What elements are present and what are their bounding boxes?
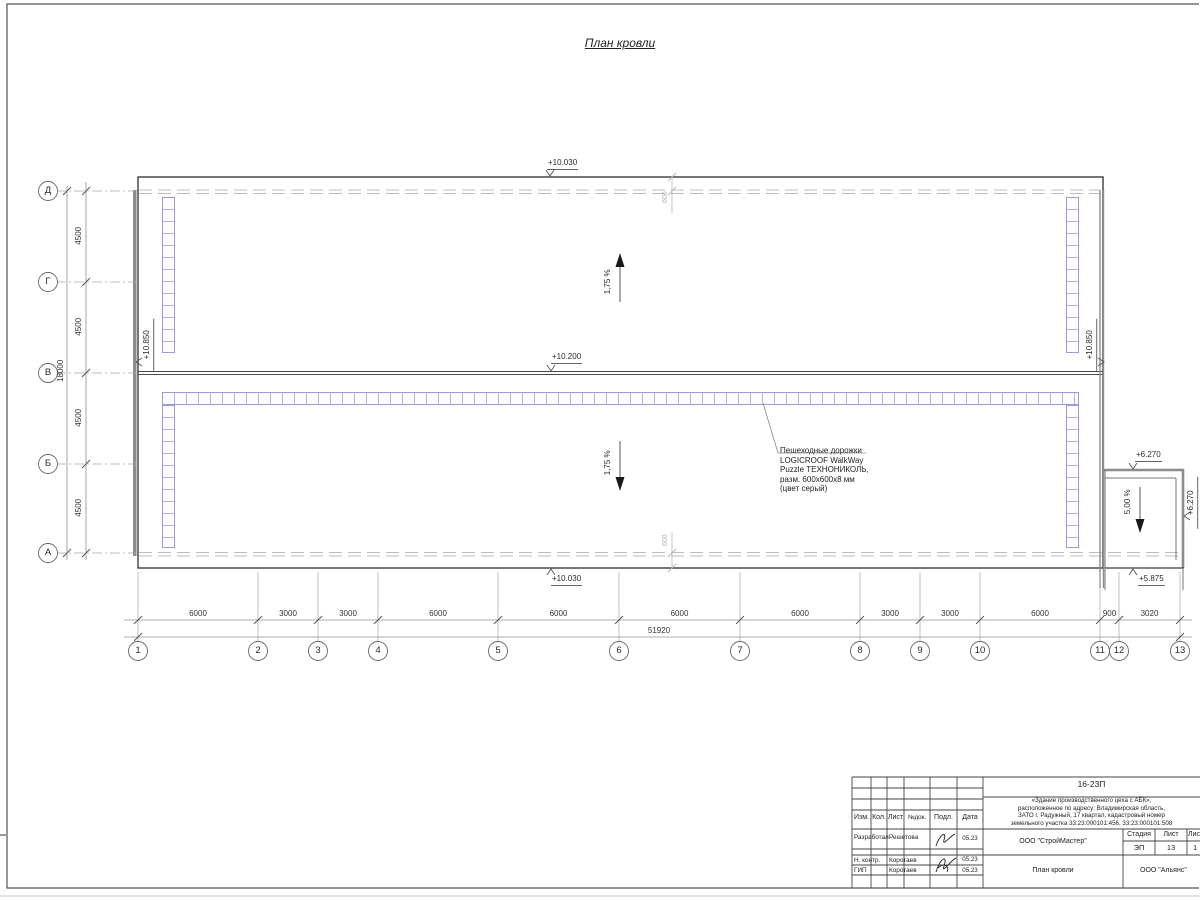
wall-right [1100, 190, 1104, 588]
walkway-strip-upper-left [162, 197, 175, 353]
dim-row-total: 18000 [56, 346, 66, 396]
elevation-ridge: +10.200 [551, 352, 582, 364]
axis-col-label: 8 [851, 645, 869, 656]
axis-col-label: 11 [1091, 645, 1109, 656]
titleblock-header-date: Дата [957, 814, 983, 822]
titleblock-role: ГИП [854, 867, 867, 874]
titleblock-sheet-label: Лист [1155, 831, 1187, 839]
slope-label-upper: 1,75 % [603, 257, 613, 307]
drawing-sheet: План кровли +10.030 +10.200 +10.030 +5.8… [0, 0, 1200, 900]
titleblock-date: 05.23 [957, 868, 983, 875]
elevation-right-wall: +10.850 [1085, 319, 1097, 371]
axis-row-label: А [39, 547, 57, 558]
axis-col-label: 9 [911, 645, 929, 656]
axis-row-label: Б [39, 458, 57, 469]
axis-col-label: 3 [309, 645, 327, 656]
axis-col-label: 7 [731, 645, 749, 656]
axis-col-label: 4 [369, 645, 387, 656]
drawing-linework [0, 0, 1200, 900]
elevation-annex-top: +6.270 [1135, 450, 1162, 462]
dim-col-segment: 6000 [775, 609, 825, 619]
titleblock-name: Решетова [889, 834, 918, 841]
wall-left [133, 190, 137, 556]
elevation-top-main: +10.030 [547, 158, 578, 170]
walkway-note: Пешеходные дорожки LOGICROOF WalkWay Puz… [780, 446, 869, 494]
dim-col-segment: 3000 [323, 609, 373, 619]
dim-col-segment: 6000 [655, 609, 705, 619]
titleblock-header-izm: Изм. [852, 814, 871, 822]
signature [936, 834, 956, 872]
dim-col-segment: 3000 [925, 609, 975, 619]
titleblock-project-line: ЗАТО г. Радужный, 17 квартал, кадастровы… [983, 813, 1200, 820]
titleblock-sheet-value: 13 [1155, 844, 1187, 852]
axis-col-label: 1 [129, 645, 147, 656]
dimension-lines [67, 177, 1192, 637]
walkway-note-line: разм. 600х600х8 мм [780, 475, 869, 485]
elevation-bottom-main: +10.030 [551, 574, 582, 586]
titleblock-name: Коротаев [889, 867, 917, 874]
titleblock-name: Коротаев [889, 857, 917, 864]
elevation-annex-right: +6.270 [1186, 477, 1198, 529]
axis-row-label: Д [39, 185, 57, 196]
titleblock-sheets-value: 1 [1193, 844, 1197, 852]
dim-row-segment: 4500 [74, 210, 84, 260]
slope-label-lower: 1,75 % [603, 438, 613, 488]
walkway-note-line: LOGICROOF WalkWay [780, 456, 869, 466]
ridge-line [138, 372, 1103, 375]
axis-row-label: В [39, 367, 57, 378]
generated-linework [39, 173, 1190, 661]
page-frame [0, 4, 1200, 896]
dim-col-segment: 6000 [173, 609, 223, 619]
titleblock-date: 05.23 [957, 857, 983, 864]
dim-parapet-top: 600 [662, 172, 670, 222]
elevation-annex-bottom: +5.875 [1138, 574, 1165, 586]
walkway-strip-lower-left [162, 405, 175, 548]
titleblock-sheets-label: Лис [1188, 831, 1200, 839]
page-title: План кровли [520, 36, 720, 50]
titleblock-doc-number: 16-23П [983, 780, 1200, 789]
titleblock-project-line: «Здание производственного цеха с АБК», [983, 798, 1200, 805]
walkway-note-line: (цвет серый) [780, 484, 869, 494]
roof-edge-dashed [139, 190, 1183, 556]
axis-col-label: 2 [249, 645, 267, 656]
walkway-note-line: Пешеходные дорожки [780, 446, 869, 456]
axis-col-label: 10 [971, 645, 989, 656]
axis-row-label: Г [39, 276, 57, 287]
walkway-strip-lower-right [1066, 405, 1079, 548]
dim-col-segment: 3000 [865, 609, 915, 619]
annex-outline [1104, 469, 1184, 590]
dim-row-segment: 4500 [74, 482, 84, 532]
building-outline [138, 177, 1103, 568]
titleblock-header-ndok: №док. [904, 815, 930, 822]
dim-col-segment: 3020 [1125, 609, 1175, 619]
titleblock-header-kol: Кол. [871, 814, 887, 822]
axis-col-label: 5 [489, 645, 507, 656]
titleblock-header-list: Лист [887, 814, 904, 822]
dim-parapet-bottom: 600 [662, 515, 670, 565]
titleblock-stage-label: Стадия [1123, 831, 1155, 839]
titleblock-date: 05.23 [957, 836, 983, 843]
titleblock-role: Н. контр. [854, 857, 880, 864]
slope-label-annex: 5,00 % [1123, 477, 1133, 527]
titleblock-header-podp: Подл. [930, 814, 957, 822]
titleblock-stage-value: ЭП [1123, 844, 1155, 852]
titleblock-drawing-name: План кровли [983, 867, 1123, 875]
dim-col-segment: 6000 [534, 609, 584, 619]
dim-row-segment: 4500 [74, 301, 84, 351]
dim-col-segment: 6000 [1015, 609, 1065, 619]
titleblock-org: ООО "СтройМастер" [983, 838, 1123, 846]
walkway-note-line: Puzzle ТЕХНОНИКОЛЬ, [780, 465, 869, 475]
titleblock-project-line: земельного участка 33:23:000101:456, 33:… [983, 821, 1200, 828]
walkway-strip-middle [162, 392, 1079, 405]
dim-col-total: 51920 [629, 626, 689, 636]
walkway-strip-upper-right [1066, 197, 1079, 353]
axis-col-label: 13 [1171, 645, 1189, 656]
titleblock-role: Разработал [854, 834, 889, 841]
dim-row-segment: 4500 [74, 392, 84, 442]
dim-col-segment: 3000 [263, 609, 313, 619]
axis-col-label: 12 [1110, 645, 1128, 656]
axis-col-label: 6 [610, 645, 628, 656]
titleblock-client: ООО "Альянс" [1140, 867, 1187, 875]
dim-col-segment: 6000 [413, 609, 463, 619]
elevation-left-wall: +10.850 [142, 319, 154, 371]
